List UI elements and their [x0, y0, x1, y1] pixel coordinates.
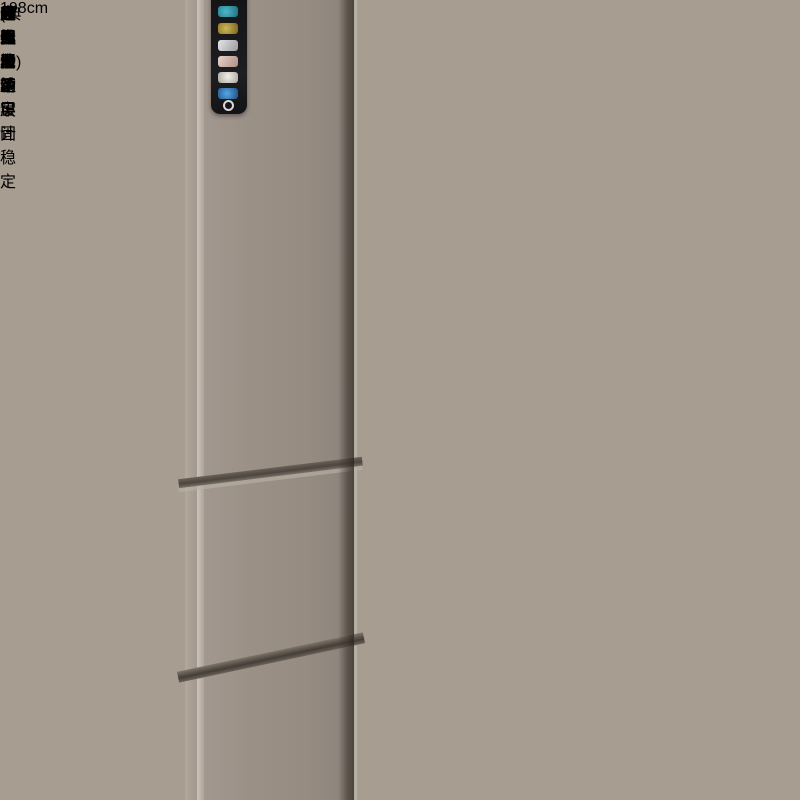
rack-translucent-panels	[346, 0, 636, 800]
panel-food-icon	[218, 23, 238, 34]
fridge-edge-highlight	[197, 0, 204, 800]
fridge-control-panel	[211, 0, 247, 114]
panel-food-icon	[218, 6, 238, 17]
refrigerator	[185, 0, 357, 800]
panel-food-icon	[218, 88, 238, 99]
panel-power-button-icon	[223, 100, 234, 111]
panel-food-icon	[218, 72, 238, 83]
emboss-text-gloss: 哑光层	[0, 0, 16, 72]
panel-food-icon	[218, 40, 238, 51]
panel-food-icon	[218, 56, 238, 67]
product-photo-page: 198cm (典雅白) 夹缝收纳 自由移动 分类分区 底部滑轮设计	[0, 0, 800, 800]
